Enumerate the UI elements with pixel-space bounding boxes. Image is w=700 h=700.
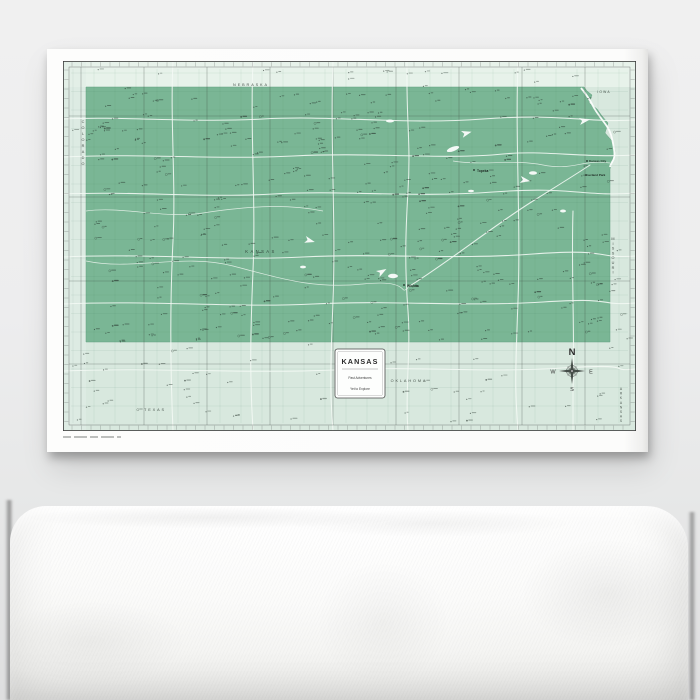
compass-east: E bbox=[589, 370, 593, 376]
compass-hub bbox=[571, 370, 573, 372]
pillow-wrinkles bbox=[10, 506, 688, 700]
legend-subtitle-2: Yet to Explore bbox=[350, 387, 370, 391]
label-iowa: IOWA bbox=[597, 90, 610, 94]
pillow-crease-right bbox=[688, 512, 696, 700]
legend-box: KANSAS Past Adventures Yet to Explore bbox=[335, 349, 385, 398]
kansas-city-dot bbox=[586, 160, 588, 162]
canvas-print: NEBRASKA IOWA OKLAHOMA TEXAS KANSAS COLO… bbox=[47, 49, 648, 452]
kansas-map-artwork: NEBRASKA IOWA OKLAHOMA TEXAS KANSAS COLO… bbox=[63, 61, 636, 431]
legend-subtitle-1: Past Adventures bbox=[348, 376, 372, 380]
wichita-dot bbox=[403, 284, 405, 286]
label-texas: TEXAS bbox=[144, 408, 166, 412]
label-kansas-state: KANSAS bbox=[245, 249, 276, 254]
topeka-dot bbox=[473, 169, 475, 171]
city-kansas-city: Kansas City bbox=[589, 159, 607, 163]
nebraska-strip bbox=[63, 61, 636, 87]
compass-south: S bbox=[570, 387, 574, 393]
city-overland-park: Overland Park bbox=[585, 173, 606, 177]
compass-north: N bbox=[569, 347, 576, 358]
label-nebraska: NEBRASKA bbox=[233, 83, 269, 87]
compass-west: W bbox=[550, 370, 556, 376]
copyright-microprint bbox=[63, 436, 121, 438]
city-topeka: Topeka bbox=[477, 169, 488, 173]
label-oklahoma: OKLAHOMA bbox=[391, 379, 428, 383]
city-wichita: Wichita bbox=[407, 284, 419, 288]
white-pillow bbox=[10, 506, 688, 700]
legend-title: KANSAS bbox=[342, 357, 379, 366]
colorado-strip bbox=[63, 61, 86, 431]
product-photo-scene: NEBRASKA IOWA OKLAHOMA TEXAS KANSAS COLO… bbox=[0, 0, 700, 700]
